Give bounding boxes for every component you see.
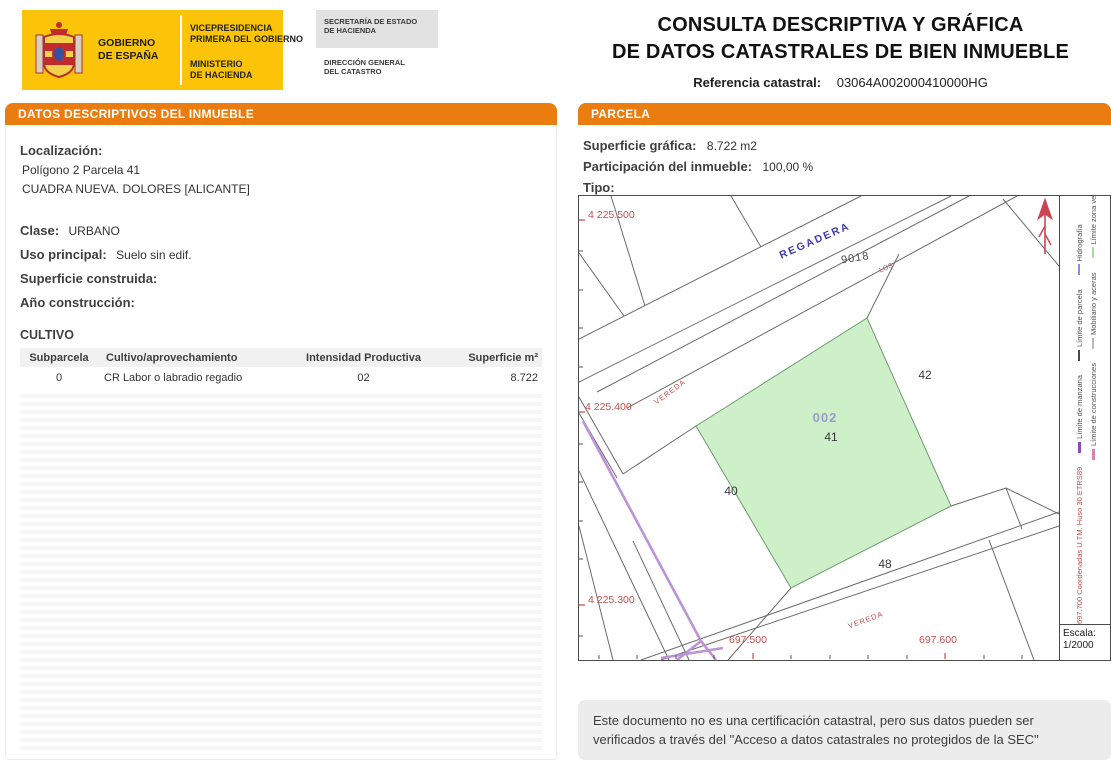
parcel-48-label: 48 [878, 557, 892, 571]
cultivo-title: CULTIVO [20, 328, 542, 342]
cell-subparcela: 0 [20, 372, 98, 384]
parcel-42-label: 42 [918, 368, 932, 382]
legend-item-manzana: Límite de manzana [1075, 375, 1084, 453]
logo-secretaria-box: SECRETARÍA DE ESTADO DE HACIENDA [316, 10, 438, 48]
legend-item-construcciones: Límite de construcciones [1089, 363, 1098, 460]
title-line-2: DE DATOS CATASTRALES DE BIEN INMUEBLE [570, 39, 1111, 66]
localizacion-label: Localización: [20, 143, 542, 158]
manzana-swatch-icon [1078, 442, 1081, 453]
scale-value: 1/2000 [1063, 640, 1110, 652]
coord-label-y2: 4 225.400 [585, 401, 632, 413]
legend-item-zona-verde: Límite zona verde [1089, 195, 1098, 259]
cell-cultivo: CR Labor o labradio regadio [104, 372, 280, 384]
parcel-41-label: 41 [824, 430, 838, 444]
clase-value: URBANO [68, 224, 119, 238]
descriptive-data-header: DATOS DESCRIPTIVOS DEL INMUEBLE [5, 103, 557, 125]
descriptive-data-body: Localización: Polígono 2 Parcela 41 CUAD… [5, 125, 557, 760]
cultivo-table: Subparcela Cultivo/aprovechamiento Inten… [20, 348, 542, 388]
superficie-grafica-field: Superficie gráfica: 8.722 m2 [583, 137, 1107, 155]
coord-label-y3: 4 225.300 [588, 594, 635, 606]
coord-label-x2: 697.600 [919, 634, 957, 646]
superficie-construida-field: Superficie construida: [20, 270, 542, 288]
cadastral-reference-label: Referencia catastral: [693, 75, 821, 90]
logo-divider [180, 15, 182, 85]
clase-field: Clase: URBANO [20, 222, 542, 240]
tipo-label: Tipo: [583, 180, 615, 195]
spain-coat-of-arms-icon [30, 19, 88, 81]
waterway-parcel-number: 9018 [840, 250, 870, 266]
cadastral-reference: Referencia catastral: 03064A002000410000… [570, 75, 1111, 90]
legend-item-parcela: Límite de parcela [1075, 289, 1084, 361]
anio-construccion-label: Año construcción: [20, 295, 135, 310]
north-arrow-icon [1038, 199, 1052, 254]
parcela-panel: PARCELA Superficie gráfica: 8.722 m2 Par… [578, 103, 1111, 197]
logo-gobierno-text: GOBIERNO DE ESPAÑA [98, 37, 158, 63]
legend-row-2: Límite de construcciones Mobiliario y ac… [1089, 198, 1098, 624]
hidrografia-swatch-icon [1078, 264, 1080, 275]
zona-verde-swatch-icon [1092, 248, 1094, 259]
cadastral-reference-value: 03064A002000410000HG [837, 75, 988, 90]
logo-ministerio-text: MINISTERIO DE HACIENDA [190, 59, 253, 81]
table-row: 0 CR Labor o labradio regadio 02 8.722 [20, 367, 542, 388]
legend-item-mobiliario: Mobiliario y aceras [1089, 273, 1098, 350]
legend-rotated-content: 697.700 Coordenadas U.TM. Huso 30 ETRS89… [1062, 198, 1110, 624]
descriptive-data-panel: DATOS DESCRIPTIVOS DEL INMUEBLE Localiza… [5, 103, 557, 760]
logo-direccion-text: DIRECCIÓN GENERAL DEL CATASTRO [324, 58, 405, 76]
waterway-prefix-label: LOS [878, 262, 894, 274]
participacion-field: Participación del inmueble: 100,00 % [583, 158, 1107, 176]
map-legend: 697.700 Coordenadas U.TM. Huso 30 ETRS89… [1059, 195, 1111, 625]
mobiliario-swatch-icon [1092, 338, 1094, 349]
parcela-header: PARCELA [578, 103, 1111, 125]
superficie-grafica-value: 8.722 m2 [707, 139, 757, 153]
uso-value: Suelo sin edif. [116, 248, 191, 262]
parcel-40-label: 40 [724, 484, 738, 498]
construcciones-swatch-icon [1092, 449, 1095, 460]
legend-coords-note: 697.700 Coordenadas U.TM. Huso 30 ETRS89 [1075, 467, 1084, 624]
superficie-grafica-label: Superficie gráfica: [583, 138, 696, 153]
parcela-body: Superficie gráfica: 8.722 m2 Participaci… [578, 125, 1111, 197]
highlighted-parcel [696, 318, 951, 588]
scale-label: Escala: [1063, 628, 1110, 640]
anio-construccion-field: Año construcción: [20, 294, 542, 312]
participacion-value: 100,00 % [763, 160, 814, 174]
cultivo-table-header-row: Subparcela Cultivo/aprovechamiento Inten… [20, 348, 542, 367]
uso-label: Uso principal: [20, 247, 107, 262]
cadastral-map: 4 225.500 4 225.400 4 225.300 697.500 69… [578, 195, 1060, 661]
legend-row-1: 697.700 Coordenadas U.TM. Huso 30 ETRS89… [1075, 198, 1084, 624]
parcela-swatch-icon [1078, 350, 1080, 361]
cell-intensidad: 02 [286, 372, 441, 384]
government-logo: GOBIERNO DE ESPAÑA VICEPRESIDENCIA PRIME… [22, 10, 438, 90]
catastro-document-page: GOBIERNO DE ESPAÑA VICEPRESIDENCIA PRIME… [0, 0, 1111, 768]
subparcel-code-label: 002 [813, 410, 838, 425]
localizacion-line-2: CUADRA NUEVA. DOLORES [ALICANTE] [20, 182, 542, 196]
document-title: CONSULTA DESCRIPTIVA Y GRÁFICA DE DATOS … [570, 12, 1111, 90]
logo-vicepresidencia-text: VICEPRESIDENCIA PRIMERA DEL GOBIERNO [190, 23, 303, 45]
vereda-label-bottom: VEREDA [847, 609, 885, 630]
disclaimer-note: Este documento no es una certificación c… [578, 700, 1111, 760]
clase-label: Clase: [20, 223, 59, 238]
title-line-1: CONSULTA DESCRIPTIVA Y GRÁFICA [570, 12, 1111, 39]
col-header-superficie: Superficie m² [447, 352, 542, 364]
col-header-intensidad: Intensidad Productiva [286, 352, 441, 364]
coord-label-y1: 4 225.500 [588, 209, 635, 221]
legend-item-hidrografia: Hidrografía [1075, 224, 1084, 275]
empty-table-rows [20, 390, 542, 751]
cell-superficie: 8.722 [447, 372, 542, 384]
participacion-label: Participación del inmueble: [583, 159, 752, 174]
superficie-construida-label: Superficie construida: [20, 271, 157, 286]
scale-box: Escala: 1/2000 [1059, 625, 1111, 661]
col-header-cultivo: Cultivo/aprovechamiento [104, 352, 280, 364]
uso-field: Uso principal: Suelo sin edif. [20, 246, 542, 264]
coord-label-x1: 697.500 [729, 634, 767, 646]
col-header-subparcela: Subparcela [20, 352, 98, 364]
localizacion-line-1: Polígono 2 Parcela 41 [20, 163, 542, 177]
